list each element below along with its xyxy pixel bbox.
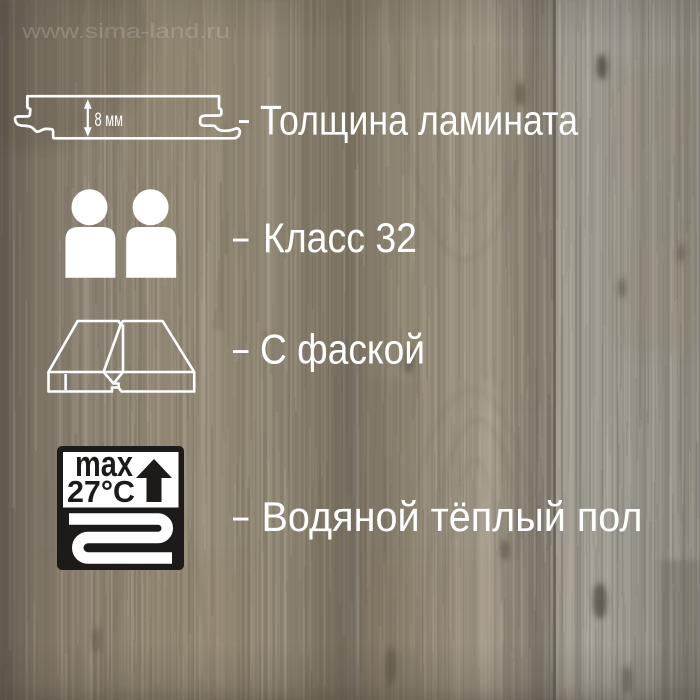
svg-text:www.sima-land.ru: www.sima-land.ru xyxy=(21,20,230,43)
svg-text:Толщина ламината: Толщина ламината xyxy=(260,97,579,144)
svg-text:Водяной тёплый пол: Водяной тёплый пол xyxy=(262,493,643,540)
svg-text:С фаской: С фаской xyxy=(260,326,425,373)
svg-text:27°C: 27°C xyxy=(67,474,135,509)
svg-text:8 мм: 8 мм xyxy=(95,109,124,131)
svg-text:Класс 32: Класс 32 xyxy=(263,214,417,261)
